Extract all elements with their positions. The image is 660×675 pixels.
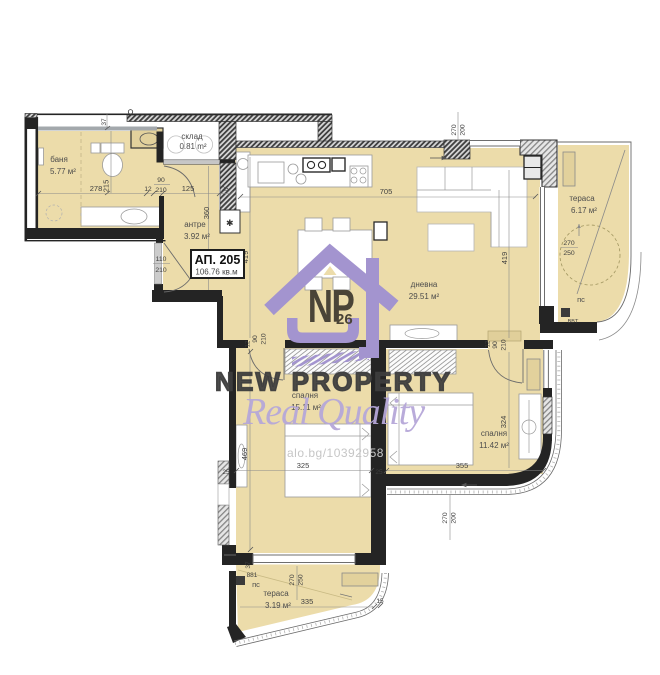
svg-text:419: 419 [500,252,509,265]
svg-text:324: 324 [499,416,508,429]
svg-text:6.17 м²: 6.17 м² [571,206,597,215]
svg-text:BBT: BBT [568,319,579,325]
svg-text:90: 90 [252,335,259,343]
svg-text:705: 705 [380,187,393,196]
svg-text:29.51 м²: 29.51 м² [409,292,440,301]
svg-text:200: 200 [460,124,467,136]
svg-text:склад: склад [181,132,203,141]
svg-text:210: 210 [501,339,508,351]
svg-text:баня: баня [50,155,68,164]
svg-text:325: 325 [297,461,310,470]
svg-text:25: 25 [222,469,230,476]
svg-text:355: 355 [456,461,469,470]
svg-text:дневна: дневна [411,280,438,289]
svg-text:пс: пс [252,580,260,589]
svg-text:250: 250 [298,574,305,586]
svg-text:11.42 м²: 11.42 м² [479,441,509,450]
svg-text:278: 278 [90,184,103,193]
svg-text:тераса: тераса [569,194,595,203]
svg-text:Real Quality: Real Quality [242,391,425,433]
svg-text:110: 110 [156,256,167,263]
svg-text:25: 25 [221,186,229,193]
svg-text:335: 335 [301,597,314,606]
svg-text:спалня: спалня [481,429,507,438]
svg-text:210: 210 [155,267,167,274]
svg-text:210: 210 [261,333,268,345]
svg-text:125: 125 [182,184,195,193]
svg-text:270: 270 [442,512,449,524]
svg-text:90: 90 [492,341,499,349]
svg-text:25: 25 [375,469,383,476]
svg-text:3.92 м²: 3.92 м² [184,232,210,241]
svg-text:12: 12 [144,186,152,193]
svg-text:881: 881 [247,572,258,579]
svg-text:антре: антре [184,220,206,229]
svg-text:26: 26 [336,311,353,328]
svg-text:106.76 кв.м: 106.76 кв.м [195,268,237,277]
svg-text:37: 37 [101,118,108,126]
svg-text:210: 210 [155,187,167,194]
svg-text:37: 37 [245,561,252,569]
svg-text:215: 215 [102,180,111,193]
svg-text:15: 15 [376,598,384,605]
svg-text:0.81 m²: 0.81 m² [179,142,206,151]
svg-text:270: 270 [289,574,296,586]
svg-text:5.77 м²: 5.77 м² [50,167,76,176]
svg-text:тераса: тераса [263,589,289,598]
svg-text:пс: пс [577,295,585,304]
svg-text:270: 270 [563,240,575,247]
svg-text:469: 469 [240,448,249,461]
svg-text:✱: ✱ [226,218,234,228]
svg-text:12: 12 [246,340,252,347]
svg-text:250: 250 [563,250,575,257]
svg-text:200: 200 [451,512,458,524]
svg-text:270: 270 [451,124,458,136]
svg-text:90: 90 [157,177,165,184]
svg-text:alo.bg/10392958: alo.bg/10392958 [287,446,384,460]
svg-text:12: 12 [486,340,492,347]
svg-text:АП. 205: АП. 205 [195,253,241,267]
svg-text:3.19 м²: 3.19 м² [265,601,291,610]
svg-text:360: 360 [202,207,211,220]
